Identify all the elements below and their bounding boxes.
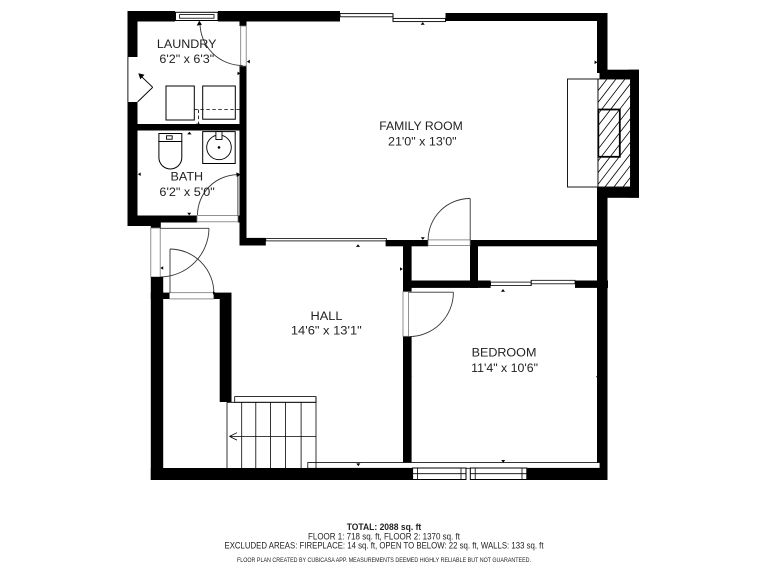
svg-text:6'2" x 6'3": 6'2" x 6'3": [159, 52, 214, 66]
svg-text:21'0" x 13'0": 21'0" x 13'0": [388, 134, 457, 148]
svg-text:FAMILY ROOM: FAMILY ROOM: [379, 119, 463, 133]
svg-text:FLOOR PLAN CREATED BY CUBICASA: FLOOR PLAN CREATED BY CUBICASA APP. MEAS…: [237, 557, 531, 564]
svg-text:6'2" x 5'0": 6'2" x 5'0": [159, 185, 214, 199]
svg-text:LAUNDRY: LAUNDRY: [157, 37, 217, 51]
svg-text:14'6" x 13'1": 14'6" x 13'1": [291, 324, 362, 338]
svg-text:EXCLUDED AREAS: FIREPLACE: 14: EXCLUDED AREAS: FIREPLACE: 14 sq. ft, OP…: [225, 540, 544, 550]
svg-text:HALL: HALL: [311, 309, 343, 323]
svg-text:TOTAL: 2088 sq. ft: TOTAL: 2088 sq. ft: [347, 522, 422, 532]
svg-text:BEDROOM: BEDROOM: [472, 346, 537, 360]
svg-text:BATH: BATH: [171, 169, 204, 183]
svg-text:11'4" x 10'6": 11'4" x 10'6": [471, 361, 538, 375]
